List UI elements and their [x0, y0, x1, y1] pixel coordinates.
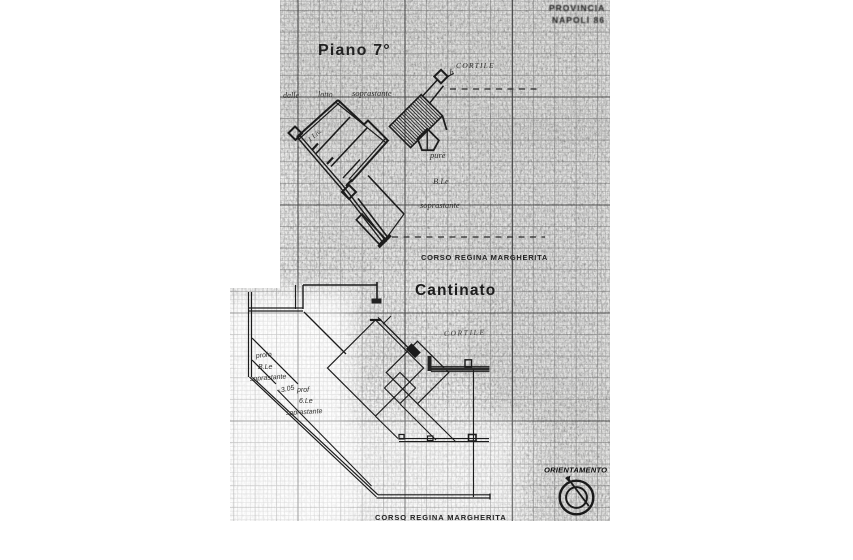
svg-text:B.Le: B.Le — [433, 176, 449, 186]
svg-text:dalle: dalle — [283, 91, 299, 100]
svg-text:NAPOLI 86: NAPOLI 86 — [552, 15, 605, 25]
svg-text:CORSO REGINA MARGHERITA: CORSO REGINA MARGHERITA — [421, 253, 548, 262]
svg-text:PROVINCIA: PROVINCIA — [549, 3, 605, 13]
svg-text:CORSO REGINA MARGHERITA: CORSO REGINA MARGHERITA — [375, 513, 507, 522]
svg-text:CORTILE: CORTILE — [444, 328, 486, 338]
svg-text:prof: prof — [296, 387, 310, 394]
svg-text:CORTILE: CORTILE — [456, 61, 495, 70]
svg-text:b: b — [450, 68, 454, 77]
svg-text:soprastante: soprastante — [352, 88, 392, 98]
svg-text:Cantinato: Cantinato — [415, 282, 496, 299]
svg-text:Piano 7°: Piano 7° — [318, 42, 391, 59]
svg-text:purè: purè — [429, 150, 446, 160]
svg-text:lotto: lotto — [318, 90, 333, 99]
svg-text:B.Le: B.Le — [258, 364, 273, 371]
svg-text:soprastante: soprastante — [420, 200, 460, 210]
svg-text:6.Le: 6.Le — [299, 398, 313, 405]
svg-text:ORIENTAMENTO: ORIENTAMENTO — [544, 466, 607, 475]
